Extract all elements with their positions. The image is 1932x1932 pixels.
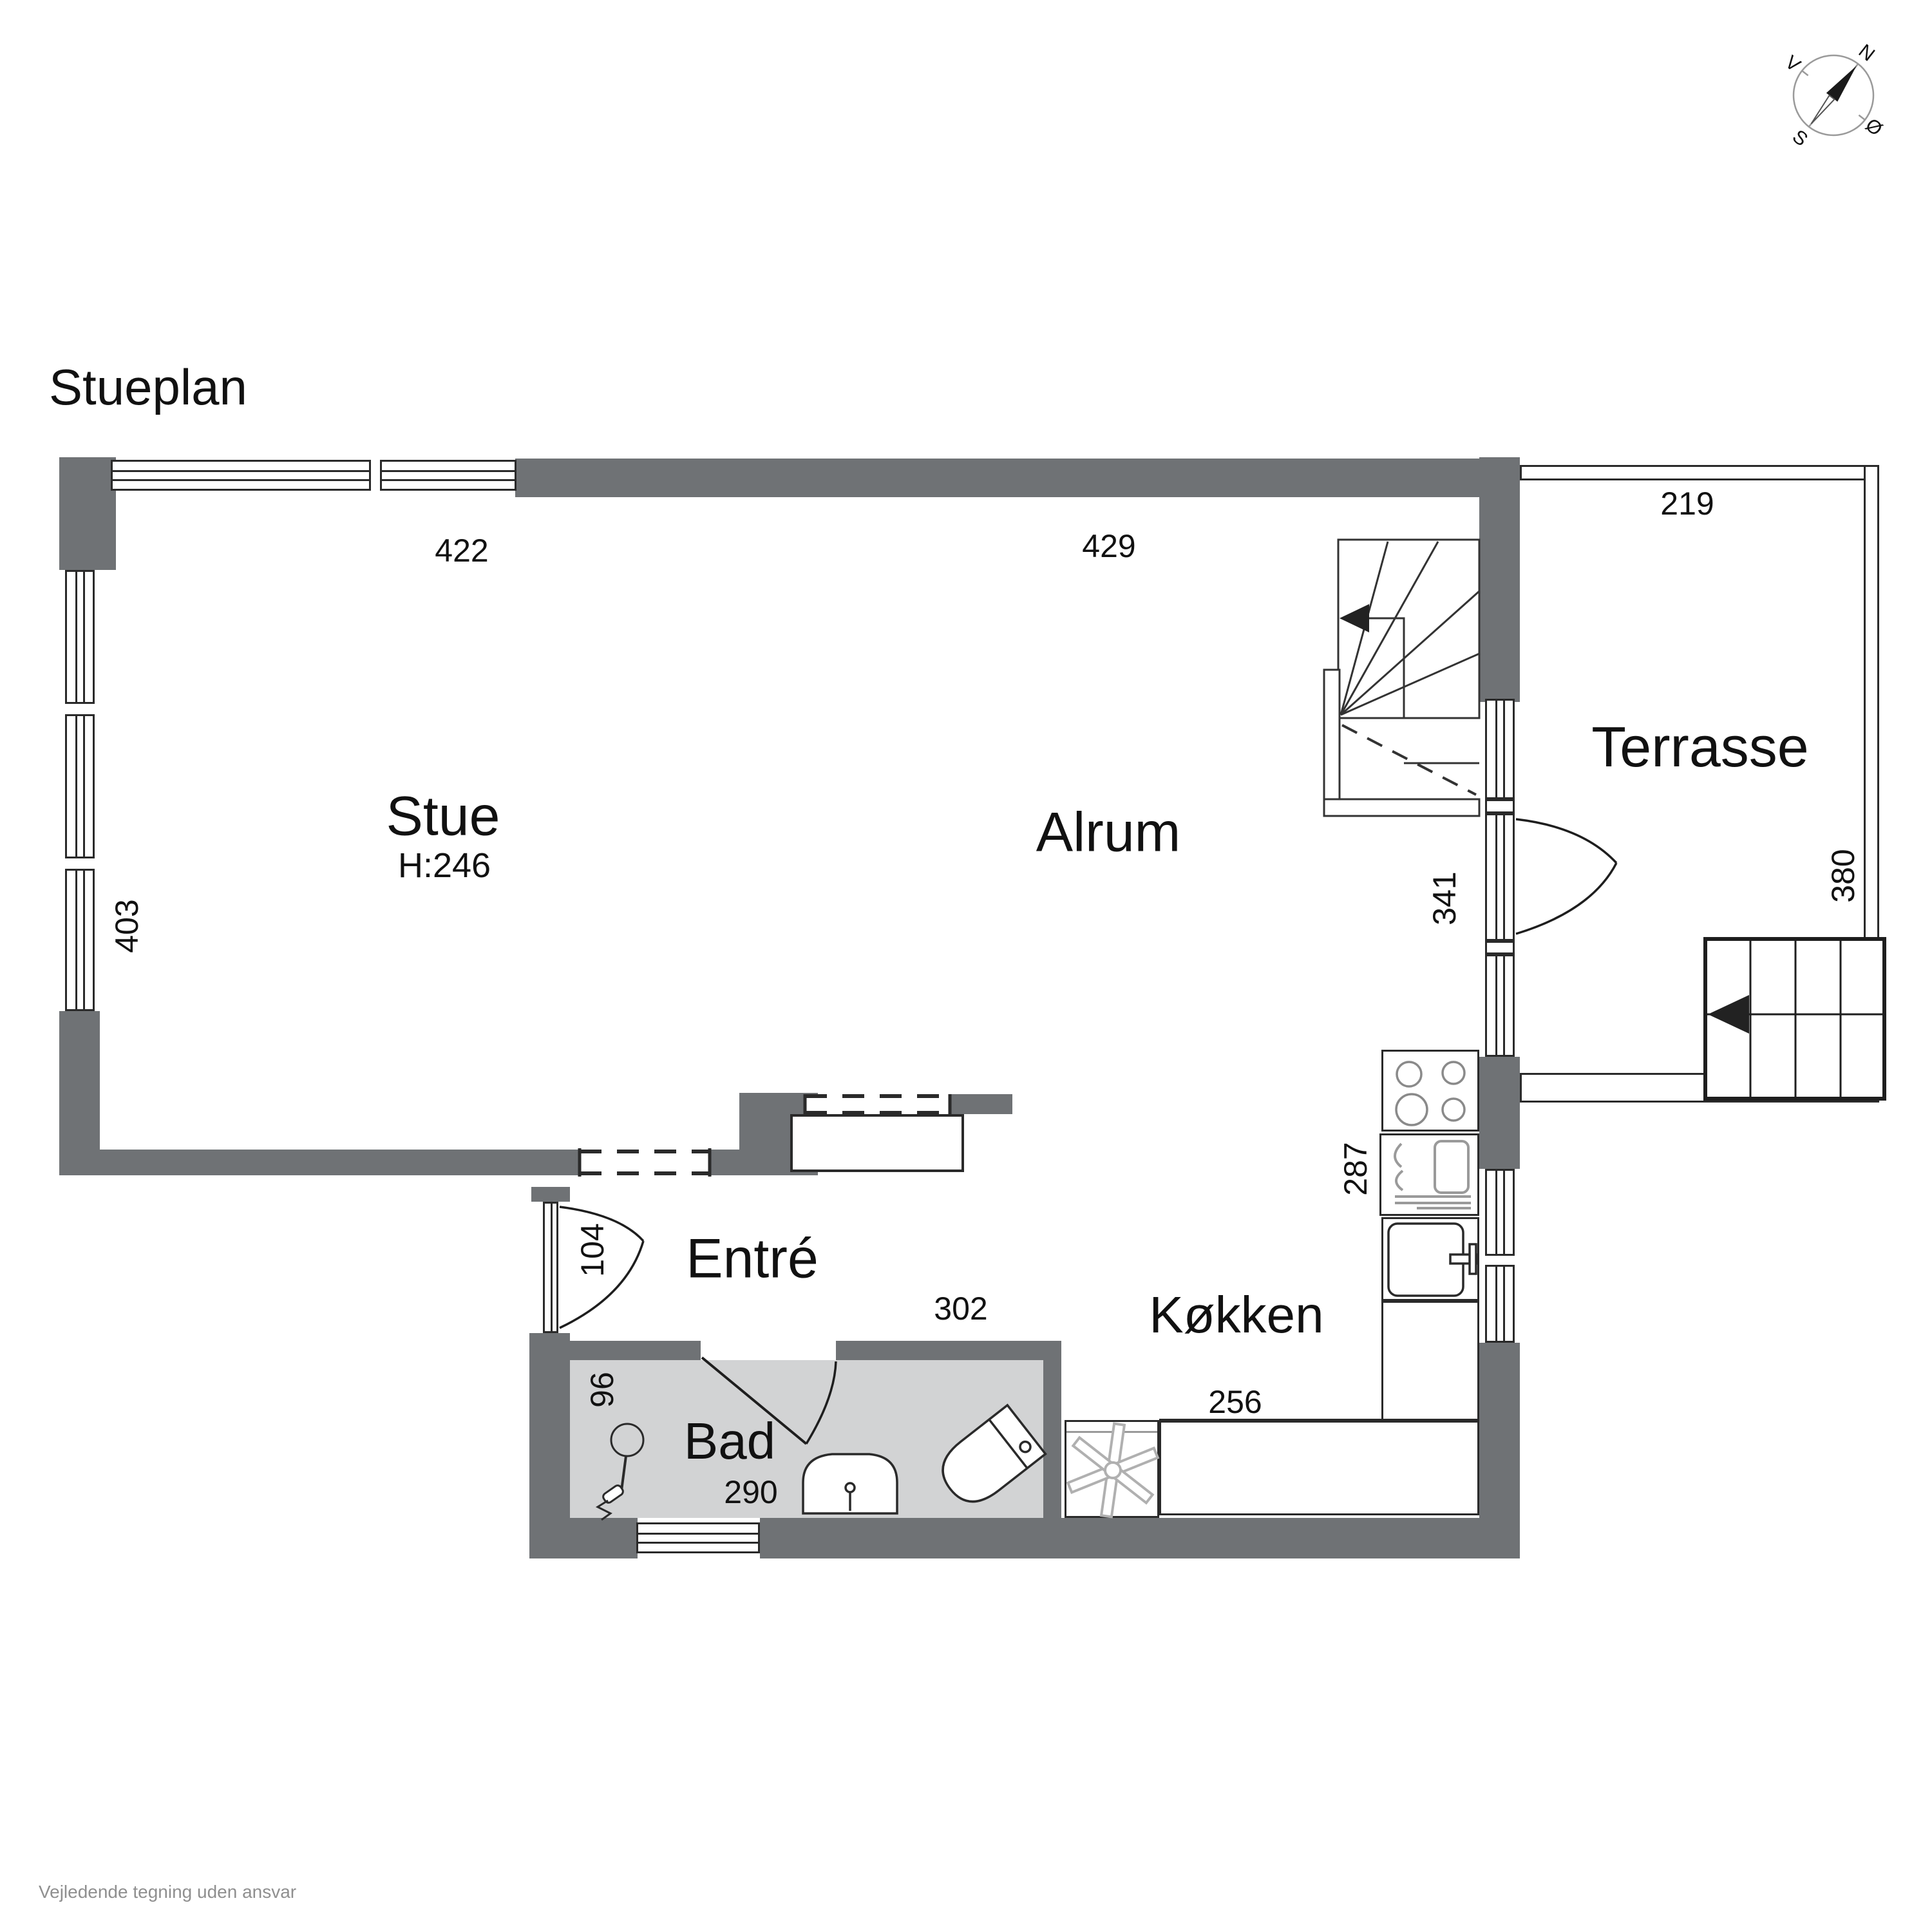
wardrobe-dashed-front [805,1094,950,1115]
compass-south-label: S [1788,126,1812,150]
stairs-cut-line [1342,725,1476,795]
room-label-entre: Entré [686,1227,819,1291]
room-label-bad: Bad [684,1412,775,1471]
compass-icon: N Ø S V [1748,9,1920,183]
dishwasher-icon [1395,1141,1471,1208]
external-stairs-icon [1705,939,1884,1099]
dim-stue-depth: 403 [108,899,146,952]
dim-alrum-width: 429 [1082,527,1135,565]
shower-icon [598,1424,643,1520]
dim-alrum-right-depth: 341 [1426,871,1463,925]
dim-terrasse-depth: 380 [1824,849,1862,902]
compass-needle-north [1826,62,1862,102]
dim-entre-door-width: 104 [574,1223,611,1276]
sink-icon [1388,1224,1477,1296]
freezer-icon [1068,1424,1158,1517]
stove-icon [1396,1062,1464,1125]
compass-needle-south [1809,95,1835,126]
compass-east-label: Ø [1861,114,1886,140]
dim-stue-width: 422 [435,532,488,569]
internal-stairs-icon [1324,540,1479,816]
dim-bad-depth: 96 [583,1372,621,1408]
dim-counter-width: 256 [1208,1383,1262,1421]
disclaimer-text: Vejledende tegning uden ansvar [39,1882,296,1902]
dim-terrasse-width: 219 [1660,485,1714,522]
washbasin-icon [803,1454,897,1513]
room-label-terrasse: Terrasse [1591,714,1808,780]
compass-north-label: N [1855,41,1879,66]
terrasse-door-arc [1516,819,1616,934]
page-title: Stueplan [49,358,247,417]
dim-bad-width: 290 [724,1473,777,1511]
room-label-alrum: Alrum [1036,801,1181,865]
fixtures-overlay: N Ø S V [0,0,1932,1932]
dim-kokken-depth: 287 [1337,1142,1374,1195]
room-label-stue: Stue [386,785,500,849]
toilet-icon [931,1405,1045,1513]
dim-entre-width: 302 [934,1290,987,1327]
floor-plan-canvas: N Ø S V Stueplan Stue H:246 Alrum Terras… [0,0,1932,1932]
room-note-stue-height: H:246 [398,846,491,885]
stue-wall-dashed-opening [580,1148,710,1177]
room-label-kokken: Køkken [1149,1285,1323,1345]
